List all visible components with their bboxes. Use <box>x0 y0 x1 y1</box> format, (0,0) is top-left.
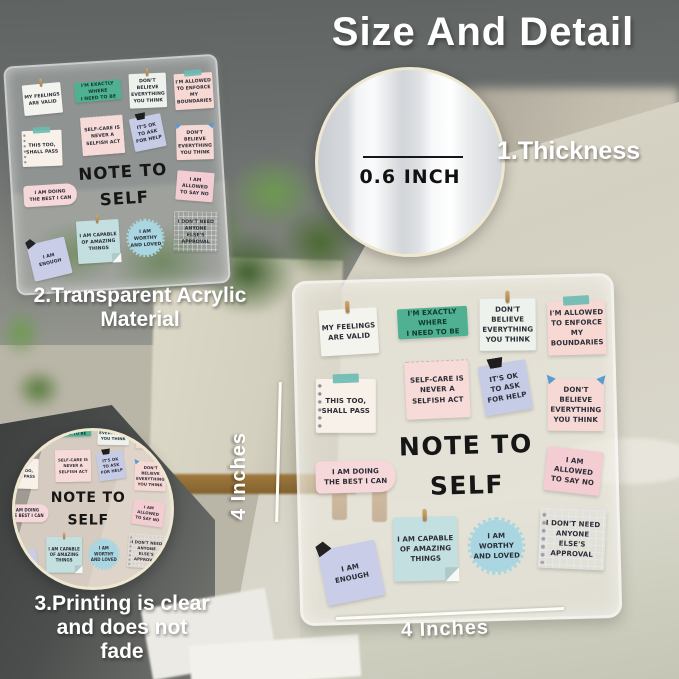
sticky-note: I'M EXACTLY WHERE I NEED TO BE <box>74 79 122 103</box>
scalloped-badge: I AM WORTHY AND LOVED <box>467 516 526 575</box>
sticky-note: IT'S OK TO ASK FOR HELP <box>96 450 127 481</box>
sticky-note: MY FEELINGS ARE VALID <box>12 428 41 446</box>
thickness-zoom-circle: 0.6 INCH <box>315 67 505 257</box>
sticky-note: I AM DOING THE BEST I CAN <box>12 504 48 522</box>
sticky-note: DON'T BELIEVE EVERYTHING YOU THINK <box>128 73 167 109</box>
sticky-note: THIS TOO, SHALL PASS <box>12 458 39 489</box>
binder-clip-icon <box>313 540 332 558</box>
plaque-heading-line2: SELF <box>46 509 130 531</box>
sticky-note: I'M ALLOWED TO ENFORCE MY BOUNDARIES <box>547 300 606 355</box>
clip-icon <box>134 112 146 121</box>
tape-icon <box>333 373 359 383</box>
sticky-note: I AM DOING THE BEST I CAN <box>23 183 77 207</box>
arrow-pin-icon <box>133 457 140 464</box>
sticky-note: I AM ENOUGH <box>26 237 72 282</box>
thickness-value: 0.6 INCH <box>318 166 502 188</box>
sticky-note: I AM CAPABLE OF AMAZING THINGS <box>76 219 121 264</box>
sticky-note: SELF-CARE IS NEVER A SELFISH ACT <box>55 449 91 482</box>
page-title: Size And Detail <box>290 10 676 55</box>
note-to-self-plaque: MY FEELINGS ARE VALID I'M EXACTLY WHERE … <box>12 428 173 590</box>
arrow-pin-icon <box>208 120 216 128</box>
sticky-note: I'M ALLOWED TO ENFORCE MY BOUNDARIES <box>136 428 168 448</box>
plaque-heading-line1: NOTE TO <box>46 486 130 508</box>
pin-icon <box>505 291 509 303</box>
plaque-heading: NOTE TO SELF <box>46 486 130 531</box>
tape-icon <box>15 456 30 461</box>
notebook-paper-note: I DON'T NEED ANYONE ELSE'S APPROVAL <box>538 508 607 571</box>
sticky-note: I AM CAPABLE OF AMAZING THINGS <box>46 537 82 573</box>
sticky-note: I AM CAPABLE OF AMAZING THINGS <box>393 516 459 582</box>
callout-thickness-label: 1.Thickness <box>497 137 640 166</box>
sticky-note: DON'T BELIEVE EVERYTHING YOU THINK <box>479 298 535 350</box>
binder-clip-icon <box>24 238 36 250</box>
sticky-note: DON'T BELIEVE EVERYTHING YOU THINK <box>176 125 214 161</box>
sticky-note: I AM ENOUGH <box>317 540 385 606</box>
note-to-self-plaque: MY FEELINGS ARE VALID I'M EXACTLY WHERE … <box>292 273 623 626</box>
tape-icon <box>184 69 202 77</box>
sticky-note: IT'S OK TO ASK FOR HELP <box>129 113 167 152</box>
pin-icon <box>63 532 65 539</box>
pin-icon <box>39 78 42 86</box>
sticky-note: THIS TOO, SHALL PASS <box>22 130 63 167</box>
arrow-pin-icon <box>543 372 556 385</box>
sticky-note: SELF-CARE IS NEVER A SELFISH ACT <box>80 114 125 156</box>
sticky-note: I AM ALLOWED TO SAY NO <box>131 499 165 528</box>
scalloped-badge: I AM WORTHY AND LOVED <box>125 218 166 259</box>
arrow-pin-icon <box>173 121 181 129</box>
plaque-heading-line1: NOTE TO <box>390 424 541 468</box>
callout-printing-label: 3.Printing is clear and does not fade <box>6 592 238 664</box>
sticky-note: I AM ALLOWED TO SAY NO <box>543 446 604 496</box>
plaque-heading-line2: SELF <box>391 464 542 508</box>
clip-icon <box>486 357 503 370</box>
sticky-note: I AM ALLOWED TO SAY NO <box>175 170 214 202</box>
sticky-note: DON'T BELIEVE EVERYTHING YOU THINK <box>548 379 604 431</box>
pin-icon <box>345 301 350 313</box>
pin-icon <box>95 215 98 223</box>
plaque-heading: NOTE TO SELF <box>390 424 542 508</box>
plaque-heading: NOTE TO SELF <box>72 156 175 215</box>
sticky-note: MY FEELINGS ARE VALID <box>22 82 63 116</box>
sticky-note: MY FEELINGS ARE VALID <box>318 307 379 356</box>
measure-line <box>363 156 463 158</box>
note-to-self-plaque: MY FEELINGS ARE VALID I'M EXACTLY WHERE … <box>3 54 231 296</box>
clip-icon <box>101 448 111 455</box>
callout-material-label: 2.Transparent Acrylic Material <box>2 284 278 332</box>
tape-icon <box>563 295 590 306</box>
notebook-paper-note: I DON'T NEED ANYONE ELSE'S APPROVAL <box>174 211 218 251</box>
pin-icon <box>423 509 427 521</box>
sticky-note: I AM DOING THE BEST I CAN <box>315 460 396 494</box>
pin-icon <box>146 68 149 76</box>
notebook-paper-note: I DON'T NEED ANYONE ELSE'S APPROVAL <box>127 533 166 569</box>
product-photo-angled: MY FEELINGS ARE VALID I'M EXACTLY WHERE … <box>3 54 233 299</box>
sticky-note: THIS TOO, SHALL PASS <box>316 379 376 433</box>
product-photo-main: MY FEELINGS ARE VALID I'M EXACTLY WHERE … <box>292 273 625 629</box>
width-dimension-label: 4 Inches <box>380 616 511 644</box>
sticky-note: I AM ENOUGH <box>12 549 41 586</box>
sticky-note: DON'T BELIEVE EVERYTHING YOU THINK <box>134 461 166 491</box>
tape-icon <box>33 127 51 134</box>
sticky-note: IT'S OK TO ASK FOR HELP <box>478 359 534 416</box>
height-dimension-label: 4 Inches <box>228 390 251 520</box>
printing-zoom-circle: MY FEELINGS ARE VALID I'M EXACTLY WHERE … <box>12 428 174 590</box>
scalloped-badge: I AM WORTHY AND LOVED <box>88 538 120 570</box>
sticky-note: I'M EXACTLY WHERE I NEED TO BE <box>397 306 468 340</box>
sticky-note: DON'T BELIEVE EVERYTHING YOU THINK <box>97 428 129 445</box>
product-infographic: Size And Detail MY FEELINGS ARE VALID I'… <box>0 0 679 679</box>
sticky-note: SELF-CARE IS NEVER A SELFISH ACT <box>404 359 470 420</box>
arrow-pin-icon <box>596 372 609 385</box>
sticky-note: I'M ALLOWED TO ENFORCE MY BOUNDARIES <box>173 72 214 110</box>
